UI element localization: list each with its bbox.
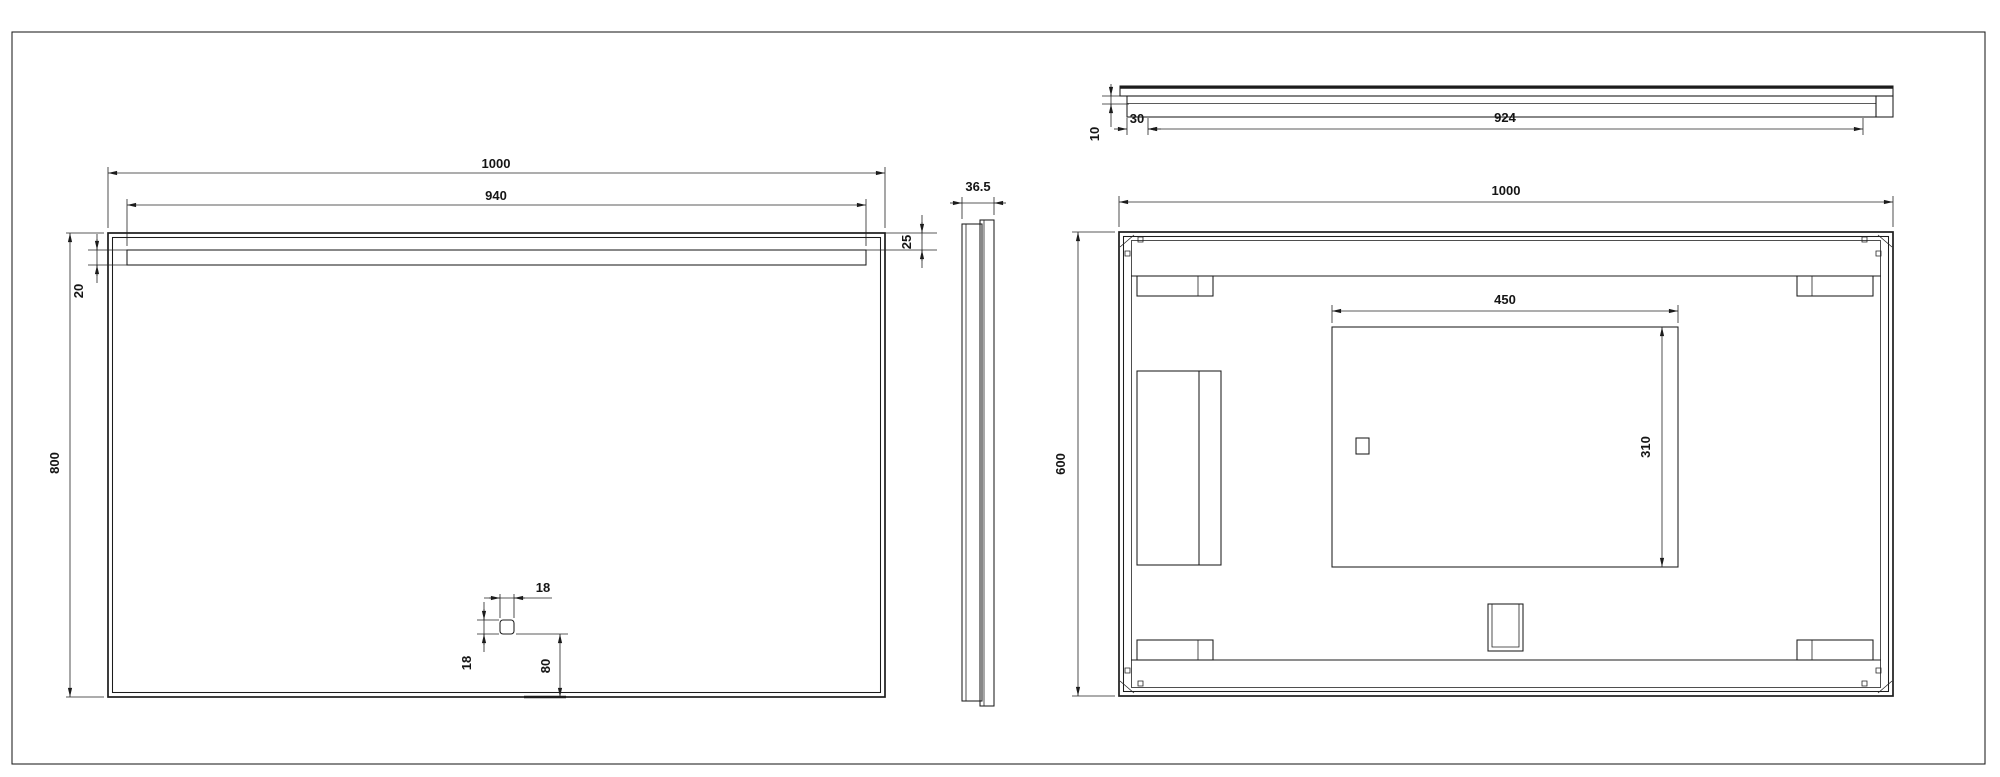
hanging-bracket-bottom-left — [1137, 640, 1213, 660]
dim-top-frame-width: 924 — [1148, 110, 1863, 135]
dim-sensor-bottom-offset: 80 — [516, 634, 568, 697]
glass-profile — [962, 224, 982, 701]
driver-box — [1137, 371, 1221, 565]
top-profile-view: 10 30 924 — [1087, 84, 1893, 141]
dim-extension-lines — [1072, 232, 1115, 696]
touch-sensor — [500, 620, 514, 634]
dim-lines — [962, 197, 994, 219]
dim-label: 20 — [71, 284, 86, 298]
dim-label: 30 — [1130, 111, 1144, 126]
bracket-outline — [1797, 276, 1873, 296]
dim-side-depth: 36.5 — [950, 179, 1006, 219]
mirror-inner-edge-front — [113, 238, 881, 693]
dim-label: 600 — [1053, 453, 1068, 475]
dim-label: 80 — [538, 659, 553, 673]
dim-sensor-width: 18 — [484, 580, 552, 618]
dim-mount-zone-height: 310 — [1638, 327, 1662, 567]
sheet-border — [12, 32, 1985, 764]
frame-band-lines — [1131, 276, 1881, 660]
front-view: 1000 940 20 25 800 — [47, 156, 937, 697]
bracket-outline — [1137, 640, 1213, 660]
dim-label: 10 — [1087, 127, 1102, 141]
mount-zone — [1332, 327, 1678, 567]
dim-lines — [477, 602, 499, 652]
side-view: 36.5 — [950, 179, 1006, 706]
dim-label: 25 — [899, 235, 914, 249]
dim-label: 18 — [459, 656, 474, 670]
led-light-strip — [127, 250, 866, 265]
dim-back-overall-width: 1000 — [1119, 183, 1893, 227]
dim-front-overall-height: 800 — [47, 233, 104, 697]
dim-front-strip-height: 20 — [71, 234, 127, 298]
hanging-bracket-top-right — [1797, 276, 1873, 296]
dim-label: 450 — [1494, 292, 1516, 307]
dim-label: 1000 — [482, 156, 511, 171]
dim-front-strip-top-gap: 25 — [866, 215, 937, 268]
dim-label: 36.5 — [965, 179, 990, 194]
dim-extension-lines — [1332, 305, 1678, 323]
back-frame-inner-rect — [1132, 241, 1881, 688]
dim-top-glass-step: 10 — [1087, 84, 1129, 141]
dim-label: 310 — [1638, 436, 1653, 458]
dim-label: 924 — [1494, 110, 1516, 125]
hanging-bracket-bottom-right — [1797, 640, 1873, 660]
dim-extension-lines — [127, 199, 866, 246]
junction-box-outline — [1488, 604, 1523, 651]
frame-end-cap — [1876, 96, 1893, 117]
bracket-outline — [1137, 276, 1213, 296]
dim-extension-lines — [1119, 196, 1893, 227]
back-view: 1000 600 450 310 — [1053, 183, 1893, 696]
cable-hole — [1356, 438, 1369, 454]
dim-extension-lines — [66, 233, 104, 697]
dim-top-frame-inset: 30 — [1114, 111, 1161, 135]
dim-lines — [1102, 84, 1129, 127]
dim-sensor-height: 18 — [459, 602, 499, 670]
driver-box-outline — [1137, 371, 1221, 565]
junction-box-inner — [1492, 604, 1519, 647]
bracket-outline — [1797, 640, 1873, 660]
dim-mount-zone-width: 450 — [1332, 292, 1678, 323]
technical-drawing-canvas: 1000 940 20 25 800 — [0, 0, 2000, 777]
junction-box — [1488, 604, 1523, 651]
dim-label: 800 — [47, 452, 62, 474]
dim-back-overall-height: 600 — [1053, 232, 1115, 696]
dim-label: 18 — [536, 580, 550, 595]
hanging-bracket-top-left — [1137, 276, 1213, 296]
mirror-outline-front — [108, 233, 885, 697]
dim-label: 940 — [485, 188, 507, 203]
dim-label: 1000 — [1492, 183, 1521, 198]
